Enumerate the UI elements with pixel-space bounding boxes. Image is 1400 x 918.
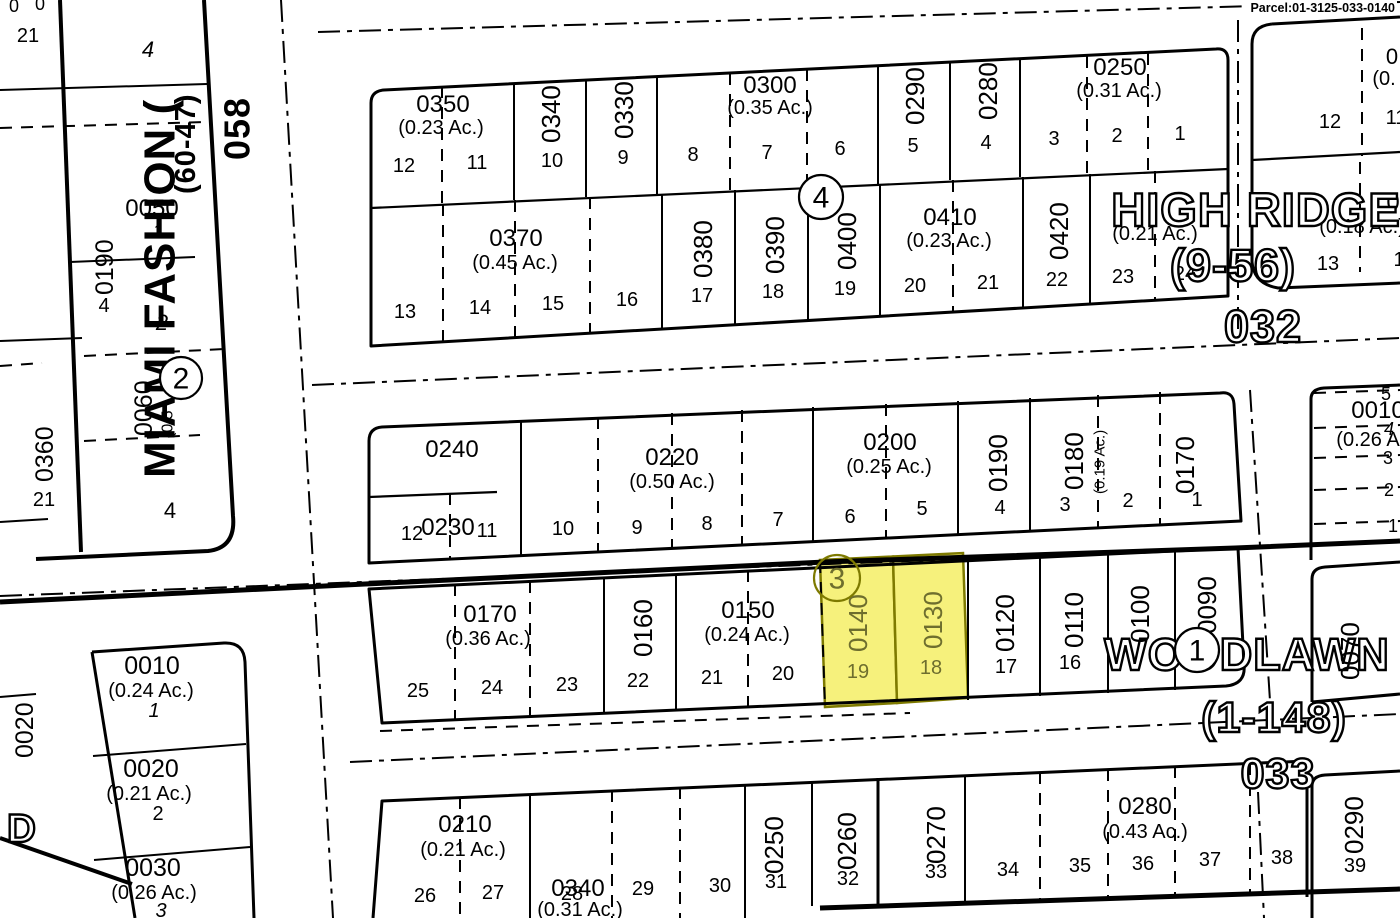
road-centerline: [1258, 792, 1264, 918]
lot-number: 20: [904, 275, 926, 297]
parcel-number: 0070: [1335, 622, 1365, 680]
lot-number: 0: [35, 0, 45, 14]
parcel-number: 0110: [1059, 592, 1089, 648]
plat-name: HIGH RIDGE: [1111, 183, 1400, 236]
parcel-number: 0190: [91, 239, 119, 295]
block-outline: [60, 0, 81, 552]
lot-line: [0, 694, 36, 697]
parcel-number: 0160: [628, 599, 658, 657]
parcel-acreage: (0.50 Ac.): [629, 471, 715, 493]
parcel-acreage: (0.26 Ac.): [111, 882, 197, 904]
lot-number: 3: [155, 900, 166, 918]
lot-line: [0, 519, 48, 522]
block-number: 4: [813, 182, 830, 215]
parcel-acreage: (0.23 Ac.): [398, 117, 484, 139]
lot-number: 20: [772, 663, 794, 685]
parcel-number: 0030: [125, 854, 181, 882]
lot-number: 8: [687, 144, 698, 166]
parcel-number: 0190: [983, 434, 1013, 492]
lot-number: 23: [556, 674, 578, 696]
parcel-number: 0370: [489, 225, 542, 252]
lot-number: 9: [617, 147, 628, 169]
lot-number: 21: [701, 667, 723, 689]
parcel-acreage: (0.25 Ac.): [846, 456, 932, 478]
lot-number: 12: [401, 523, 423, 545]
lot-number: 29: [632, 878, 654, 900]
lot-number: 1: [148, 700, 159, 722]
parcel-acreage: (0.45 Ac.): [472, 252, 558, 274]
parcel-number: 0270: [921, 806, 951, 864]
lot-number: 3: [1048, 128, 1059, 150]
plat-name: 033: [1241, 750, 1316, 798]
lot-number: 21: [977, 272, 999, 294]
parcel-number: 0250: [759, 816, 789, 874]
parcel-number: 0090: [1192, 576, 1222, 634]
block-divider: [1252, 152, 1400, 160]
plat-name: (1-148): [1201, 694, 1347, 742]
block-divider: [369, 492, 497, 497]
plat-name: 032: [1224, 301, 1302, 352]
parcel-number: 0100: [1125, 585, 1155, 643]
parcel-number: 0240: [425, 436, 478, 463]
parcel-number: 0010: [124, 652, 180, 680]
parcel-number: 0020: [123, 755, 179, 783]
lot-number: 18: [762, 281, 784, 303]
highlighted-parcel-label: 19: [847, 661, 869, 683]
parcel-number: 0290: [1339, 796, 1369, 854]
parcel-acreage: (0.31 Ac.): [1076, 80, 1162, 102]
lot-number: 3: [1383, 448, 1393, 468]
lot-number: 1: [1393, 249, 1400, 271]
plat-name: 058: [217, 97, 258, 160]
lot-number: 32: [837, 868, 859, 890]
lot-number: 33: [925, 861, 947, 883]
lot-number: 2: [1111, 125, 1122, 147]
parcel-number: 0380: [688, 220, 718, 278]
lot-number: 0: [9, 0, 19, 16]
lot-number: 2: [1384, 480, 1394, 500]
lot-line: [0, 84, 207, 90]
lot-number: 11: [477, 520, 498, 542]
lot-number: 38: [1271, 847, 1293, 869]
block-number: 3: [829, 563, 846, 596]
parcel-number: 0350: [416, 91, 469, 118]
plat-name: (9-56): [1170, 240, 1296, 291]
parcel-map-stage: Parcel:01-3125-033-0140 00214MIAMI FASHI…: [0, 0, 1400, 918]
parcel-number: 0260: [832, 812, 862, 870]
lot-number: 3: [1059, 494, 1070, 516]
lot-number: 26: [414, 885, 436, 907]
parcel-number: 0280: [973, 62, 1003, 120]
lot-number: 1: [1388, 516, 1398, 536]
lot-number: 4: [142, 37, 154, 62]
lot-number: 17: [691, 285, 713, 307]
parcel-number: 0170: [463, 601, 516, 628]
parcel-number: 0020: [11, 702, 39, 758]
lot-number: 4: [994, 497, 1005, 519]
parcel-acreage: (0.24 Ac.): [704, 624, 790, 646]
lot-number: 8: [701, 513, 712, 535]
lot-number: 25: [407, 680, 429, 702]
block-number: 2: [173, 363, 190, 396]
parcel-number: 0330: [609, 81, 639, 139]
lot-number: 2: [155, 310, 168, 335]
parcel-acreage: (0.36 Ac.): [445, 628, 531, 650]
lot-number: 7: [761, 142, 772, 164]
lot-number: 14: [469, 297, 491, 319]
parcel-acreage: (0.35 Ac.): [727, 97, 813, 119]
road-centerline: [281, 0, 333, 918]
lot-number: 21: [33, 489, 55, 511]
parcel-acreage: (0.5: [160, 410, 177, 438]
lot-number: 11: [467, 152, 488, 174]
parcel-number: 0390: [760, 216, 790, 274]
parcel-number: 0360: [31, 426, 59, 482]
parcel-map-canvas[interactable]: 00214MIAMI FASHION ((60-47)0580050101904…: [0, 0, 1400, 918]
parcel-acreage: (0.: [1372, 68, 1395, 90]
parcel-number: 0060: [130, 380, 158, 436]
lot-number: 1: [152, 221, 163, 243]
lot-number: 16: [616, 289, 638, 311]
lot-number: 5: [907, 135, 918, 157]
lot-number: 10: [552, 518, 574, 540]
parcel-acreage: (0.31 Ac.): [537, 899, 623, 918]
lot-number: 30: [709, 875, 731, 897]
parcel-acreage: (0.23 Ac.): [906, 230, 992, 252]
highlighted-parcel-label: 18: [920, 657, 942, 679]
lot-number: 9: [631, 517, 642, 539]
lot-number: 39: [1344, 855, 1366, 877]
lot-number: 4: [164, 498, 176, 523]
lot-number: 21: [17, 25, 39, 47]
lot-number: 36: [1132, 853, 1154, 875]
lot-number: 23: [1112, 266, 1134, 288]
lot-number: 7: [772, 509, 783, 531]
parcel-number: 0400: [832, 212, 862, 270]
block-outline: [369, 393, 1241, 563]
block-number: 1: [1189, 635, 1206, 668]
parcel-acreage: (0.21 Ac.): [420, 839, 506, 861]
lot-number: 6: [834, 138, 845, 160]
parcel-number: 0210: [438, 811, 491, 838]
parcel-number: 0050: [125, 195, 178, 222]
lot-number: 17: [995, 656, 1017, 678]
block-outline: [1272, 17, 1400, 24]
plat-name: (60-47): [170, 94, 202, 195]
parcel-number: 0250: [1093, 54, 1146, 81]
lot-number: 1: [1191, 489, 1202, 511]
lot-number: 2: [152, 803, 163, 825]
lot-number: 4: [980, 132, 991, 154]
lot-line: [0, 338, 82, 341]
parcel-number: 0280: [1118, 793, 1171, 820]
map-labels-layer: 00214MIAMI FASHION ((60-47)0580050101904…: [7, 0, 1400, 918]
lot-line: [380, 713, 910, 731]
lot-number: 6: [844, 506, 855, 528]
lot-number: 5: [916, 498, 927, 520]
parcel-number: 0410: [923, 204, 976, 231]
lot-number: 15: [542, 293, 564, 315]
lot-number: 4: [98, 295, 109, 317]
lot-number: 11: [1386, 107, 1400, 129]
parcel-number: 0200: [863, 429, 916, 456]
parcel-acreage: (0.21 Ac.): [106, 783, 192, 805]
parcel-acreage: (0.43 Ac.): [1102, 821, 1188, 843]
road-centerline: [1250, 390, 1272, 732]
parcel-number: 0120: [990, 594, 1020, 652]
lot-number: 2: [1122, 490, 1133, 512]
parcel-number: 0300: [743, 72, 796, 99]
parcel-number: 0150: [721, 597, 774, 624]
lot-number: 13: [1317, 253, 1339, 275]
lot-number: 10: [541, 150, 563, 172]
parcel-number: 0: [1386, 44, 1398, 69]
lot-number: 19: [834, 278, 856, 300]
parcel-number: 0230: [421, 514, 474, 541]
parcel-number: 0420: [1044, 202, 1074, 260]
lot-number: 12: [393, 155, 415, 177]
lot-number: 13: [394, 301, 416, 323]
parcel-number: 0340: [536, 85, 566, 143]
parcel-number: 0290: [900, 67, 930, 125]
lot-number: 35: [1069, 855, 1091, 877]
parcel-number: 0170: [1170, 436, 1200, 494]
lot-number: 12: [1319, 111, 1341, 133]
parcel-number: 0180: [1059, 432, 1089, 490]
lot-number: 22: [1046, 269, 1068, 291]
highlighted-parcel-label: 0130: [918, 591, 948, 649]
parcel-id-label: Parcel:01-3125-033-0140: [1248, 1, 1397, 15]
lot-number: 22: [627, 670, 649, 692]
lot-number: 31: [765, 871, 787, 893]
plat-name: D: [7, 807, 37, 851]
lot-number: 27: [482, 882, 504, 904]
lot-number: 34: [997, 859, 1019, 881]
parcel-number: 0220: [645, 444, 698, 471]
lot-number: 37: [1199, 849, 1221, 871]
parcel-acreage: (0.19 Ac.): [1092, 430, 1109, 494]
parcel-acreage: (0.24 Ac.): [108, 680, 194, 702]
lot-number: 24: [481, 677, 503, 699]
lot-line: [0, 363, 42, 366]
lot-number: 1: [1174, 123, 1185, 145]
lot-number: 16: [1059, 652, 1081, 674]
highlighted-parcel-label: 0140: [843, 594, 873, 652]
